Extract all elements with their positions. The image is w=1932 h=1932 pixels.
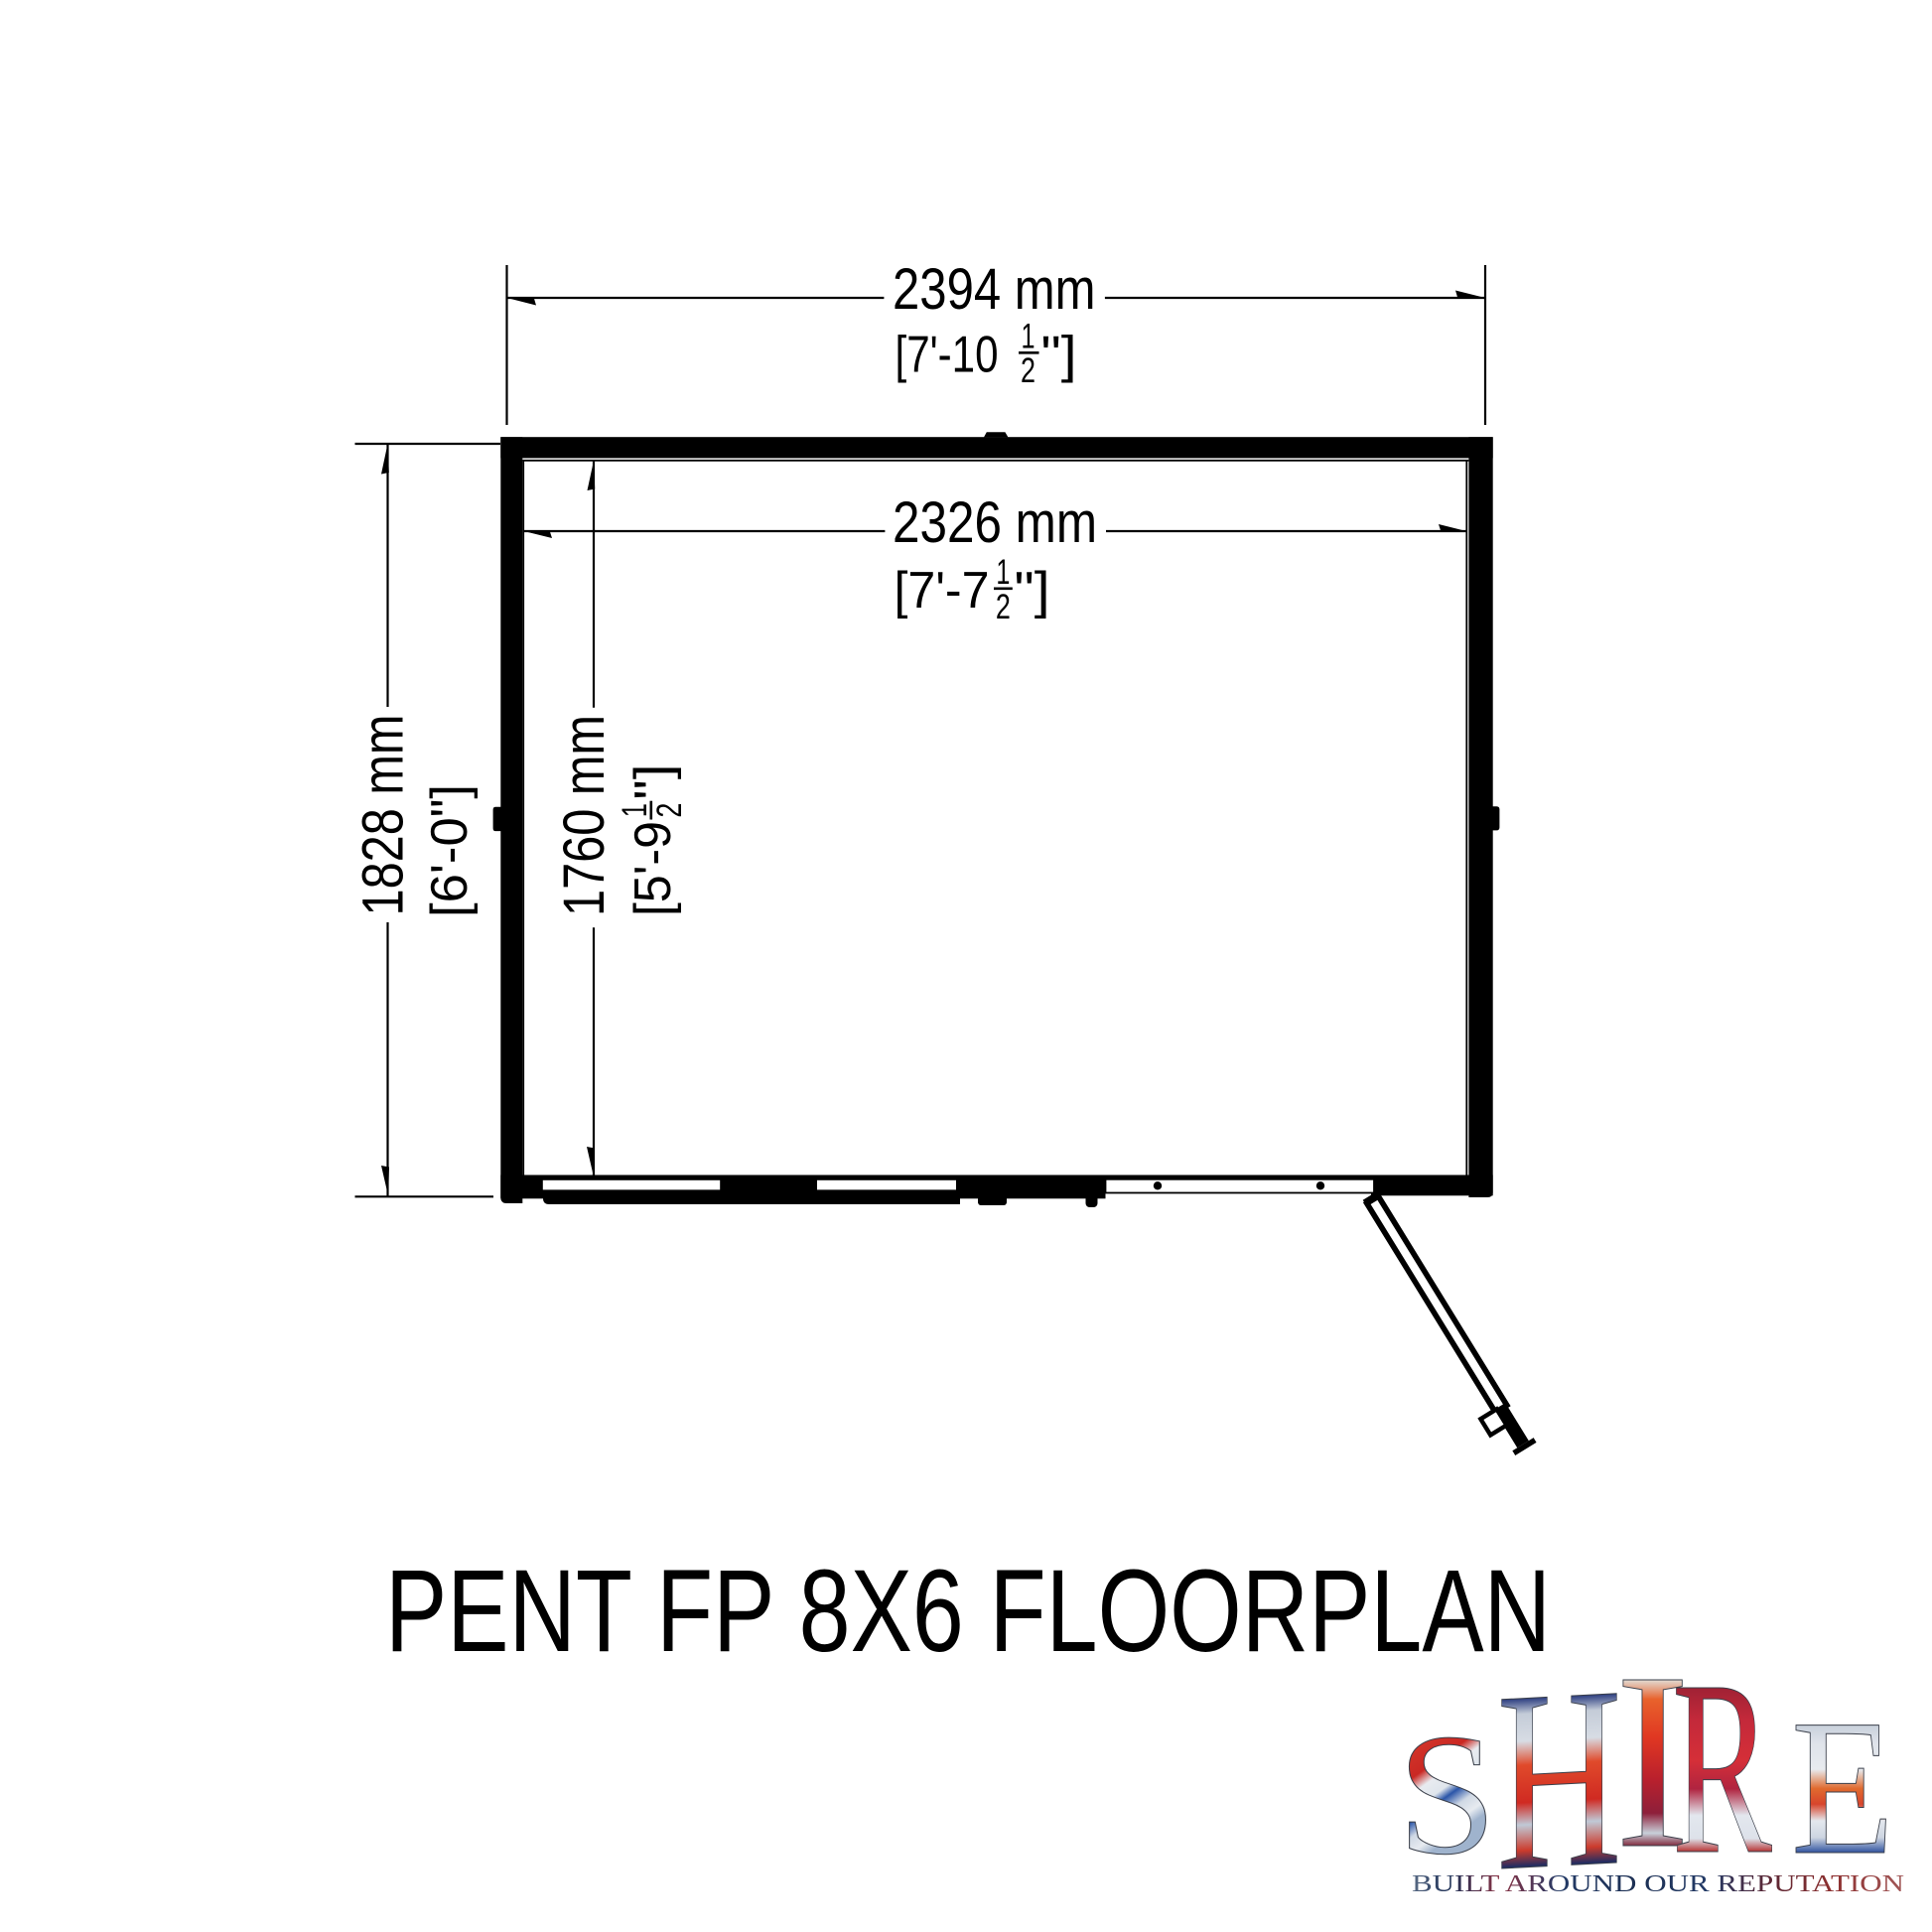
svg-text:2394 mm: 2394 mm	[893, 257, 1096, 322]
svg-text:[7'-10: [7'-10	[896, 327, 999, 384]
svg-text:2326 mm: 2326 mm	[893, 490, 1097, 555]
svg-text:2: 2	[1021, 351, 1035, 390]
svg-text:E: E	[1791, 1680, 1894, 1895]
svg-text:1828 mm: 1828 mm	[351, 715, 416, 916]
svg-text:1: 1	[996, 553, 1010, 592]
svg-text:2: 2	[650, 803, 689, 818]
svg-text:[7'-7: [7'-7	[895, 562, 990, 620]
svg-text:"]: "]	[1041, 327, 1077, 384]
svg-text:R: R	[1672, 1629, 1772, 1906]
svg-text:[6'-0"]: [6'-0"]	[421, 784, 479, 917]
svg-text:[5'-9: [5'-9	[624, 821, 682, 916]
svg-text:S: S	[1397, 1699, 1496, 1890]
svg-text:"]: "]	[1015, 562, 1050, 620]
svg-text:1760 mm: 1760 mm	[552, 715, 617, 916]
svg-text:2: 2	[996, 588, 1011, 626]
svg-text:PENT FP 8X6 FLOORPLAN: PENT FP 8X6 FLOORPLAN	[385, 1546, 1551, 1677]
svg-text:1: 1	[616, 803, 654, 817]
svg-text:BUILT AROUND OUR REPUTATION: BUILT AROUND OUR REPUTATION	[1412, 1871, 1904, 1897]
svg-text:"]: "]	[624, 764, 682, 800]
svg-text:1: 1	[1022, 318, 1035, 356]
